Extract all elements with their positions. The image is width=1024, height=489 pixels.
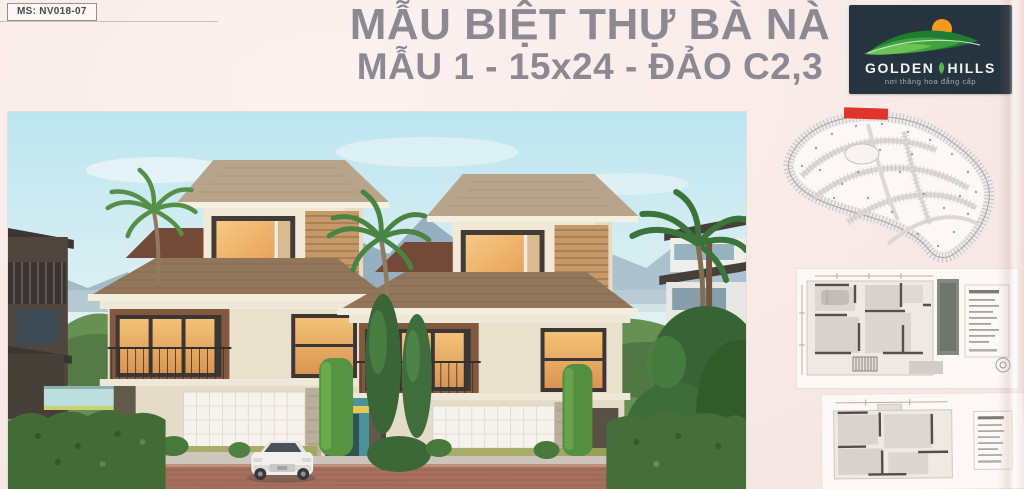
logo-word-hills: HILLS <box>948 60 996 76</box>
logo-tagline: nơi thăng hoa đẳng cấp <box>885 77 976 86</box>
model-code-box: MS: NV018-07 <box>7 3 97 21</box>
title-line-1: MẪU BIỆT THỰ BÀ NÀ <box>318 2 862 48</box>
plan-legend-upper <box>974 411 1013 469</box>
title-line-2: MẪU 1 - 15x24 - ĐẢO C2,3 <box>318 48 862 86</box>
stairs <box>853 357 877 371</box>
photo-tint-overlay <box>8 112 746 489</box>
master-plan-map <box>772 106 1010 264</box>
deck <box>909 361 943 374</box>
floor-plan-ground-sheet <box>797 269 1018 388</box>
model-code-text: MS: NV018-07 <box>17 6 87 17</box>
hills-icon <box>864 31 980 55</box>
poster-board: MS: NV018-07 MẪU BIỆT THỰ BÀ NÀ MẪU 1 - … <box>0 0 1024 489</box>
pool-water <box>940 283 956 351</box>
plan-legend-ground <box>965 285 1009 357</box>
tree-symbol <box>996 358 1010 372</box>
golden-hills-emblem-icon <box>856 13 1006 59</box>
poster-title: MẪU BIỆT THỰ BÀ NÀ MẪU 1 - 15x24 - ĐẢO C… <box>318 2 862 86</box>
logo-brand-name: GOLDEN HILLS <box>865 60 996 76</box>
floor-plan-upper-sheet <box>822 393 1024 489</box>
master-plan-park <box>845 144 879 164</box>
villa-rendering <box>8 112 746 489</box>
logo-word-golden: GOLDEN <box>865 60 935 76</box>
board-top-edge <box>0 21 218 22</box>
highlighted-lot <box>844 107 888 120</box>
plan-drawing-upper <box>834 404 953 479</box>
leaf-icon <box>937 62 946 75</box>
golden-hills-logo: GOLDEN HILLS nơi thăng hoa đẳng cấp <box>849 5 1012 94</box>
